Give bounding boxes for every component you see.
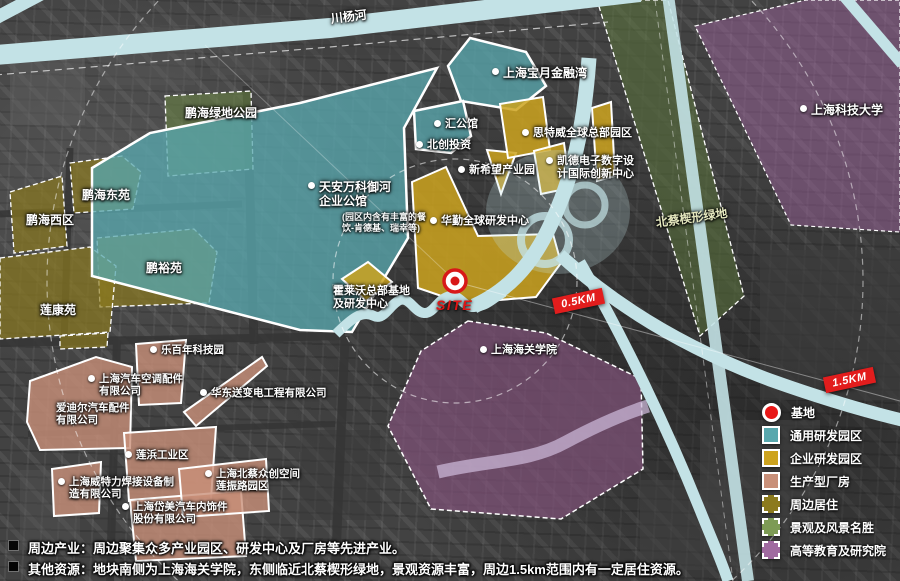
legend-item-factory: 生产型厂房: [762, 473, 886, 489]
zone-shanghaitech: [695, 0, 900, 232]
legend-item-site: 基地: [762, 404, 886, 420]
note-resources: 其他资源：地块南侧为上海海关学院，东侧临近北蔡楔形绿地，景观资源丰富，周边1.5…: [6, 559, 689, 578]
legend-item-education: 高等教育及研究院: [762, 542, 886, 558]
legend-item-residential: 周边居住: [762, 496, 886, 512]
site-marker: [444, 270, 466, 292]
legend-item-general-rd: 通用研发园区: [762, 427, 886, 443]
legend-item-enterprise-rd: 企业研发园区: [762, 450, 886, 466]
legend: 基地 通用研发园区 企业研发园区 生产型厂房 周边居住 景观及风景名胜 高等教育…: [762, 404, 886, 558]
tan-swatch-icon: [762, 472, 780, 490]
site-label: SITE: [436, 297, 473, 313]
zone-weiteli: [52, 462, 101, 516]
olive-swatch-icon: [762, 495, 780, 513]
square-bullet-icon: [9, 541, 18, 550]
site-swatch-icon: [762, 403, 781, 422]
gold-swatch-icon: [762, 449, 780, 467]
legend-item-landscape: 景观及风景名胜: [762, 519, 886, 535]
planning-map: 川杨河 鹏海绿地公园 鹏海东苑 鹏海西区 鹏裕苑 莲康苑 上海宝月金融湾 汇公馆…: [0, 0, 900, 581]
green-swatch-icon: [762, 518, 780, 536]
zone-lebainian: [136, 340, 186, 405]
bottom-notes: 周边产业：周边聚集众多产业园区、研发中心及厂房等先进产业。 其他资源：地块南侧为…: [6, 538, 689, 578]
zone-auto-ac: [27, 357, 132, 450]
zone-hui-mansion: [414, 101, 471, 153]
zone-beicai-maker: [179, 459, 269, 517]
purple-swatch-icon: [762, 541, 780, 559]
zone-huadong-wedge: [184, 357, 267, 426]
note-industry: 周边产业：周边聚集众多产业园区、研发中心及厂房等先进产业。: [6, 538, 689, 557]
square-bullet-icon: [9, 562, 18, 571]
teal-swatch-icon: [762, 426, 780, 444]
